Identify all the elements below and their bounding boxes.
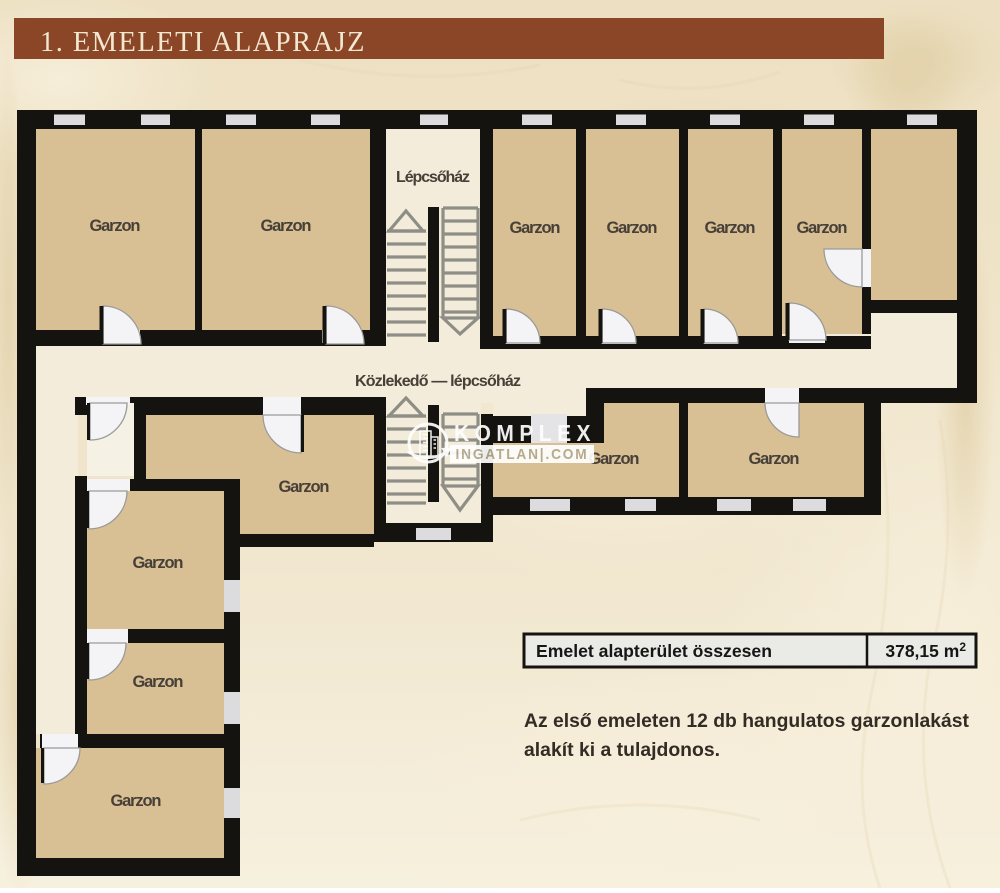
svg-text:1. EMELETI ALAPRAJZ: 1. EMELETI ALAPRAJZ — [40, 27, 366, 58]
svg-text:378,15 m2: 378,15 m2 — [885, 640, 966, 661]
svg-text:alakít ki a tulajdonos.: alakít ki a tulajdonos. — [524, 739, 720, 761]
svg-text:Garzon: Garzon — [797, 219, 848, 237]
svg-text:Garzon: Garzon — [589, 450, 640, 468]
svg-text:Az első emeleten 12 db hangula: Az első emeleten 12 db hangulatos garzon… — [524, 710, 970, 732]
svg-text:Közlekedő — lépcsőház: Közlekedő — lépcsőház — [355, 373, 521, 390]
svg-text:Garzon: Garzon — [90, 217, 141, 235]
svg-text:Emelet alapterület összesen: Emelet alapterület összesen — [536, 641, 772, 661]
svg-text:Garzon: Garzon — [133, 673, 184, 691]
svg-text:Garzon: Garzon — [607, 219, 658, 237]
svg-text:Lépcsőház: Lépcsőház — [396, 169, 470, 186]
svg-text:INGATLAN|.COM: INGATLAN|.COM — [456, 446, 589, 463]
svg-text:Garzon: Garzon — [111, 792, 162, 810]
svg-text:Garzon: Garzon — [705, 219, 756, 237]
svg-text:Garzon: Garzon — [749, 450, 800, 468]
svg-text:Garzon: Garzon — [261, 217, 312, 235]
svg-text:Garzon: Garzon — [133, 554, 184, 572]
svg-text:KOMPLEX: KOMPLEX — [454, 420, 596, 446]
svg-text:Garzon: Garzon — [510, 219, 561, 237]
svg-text:Garzon: Garzon — [279, 478, 330, 496]
